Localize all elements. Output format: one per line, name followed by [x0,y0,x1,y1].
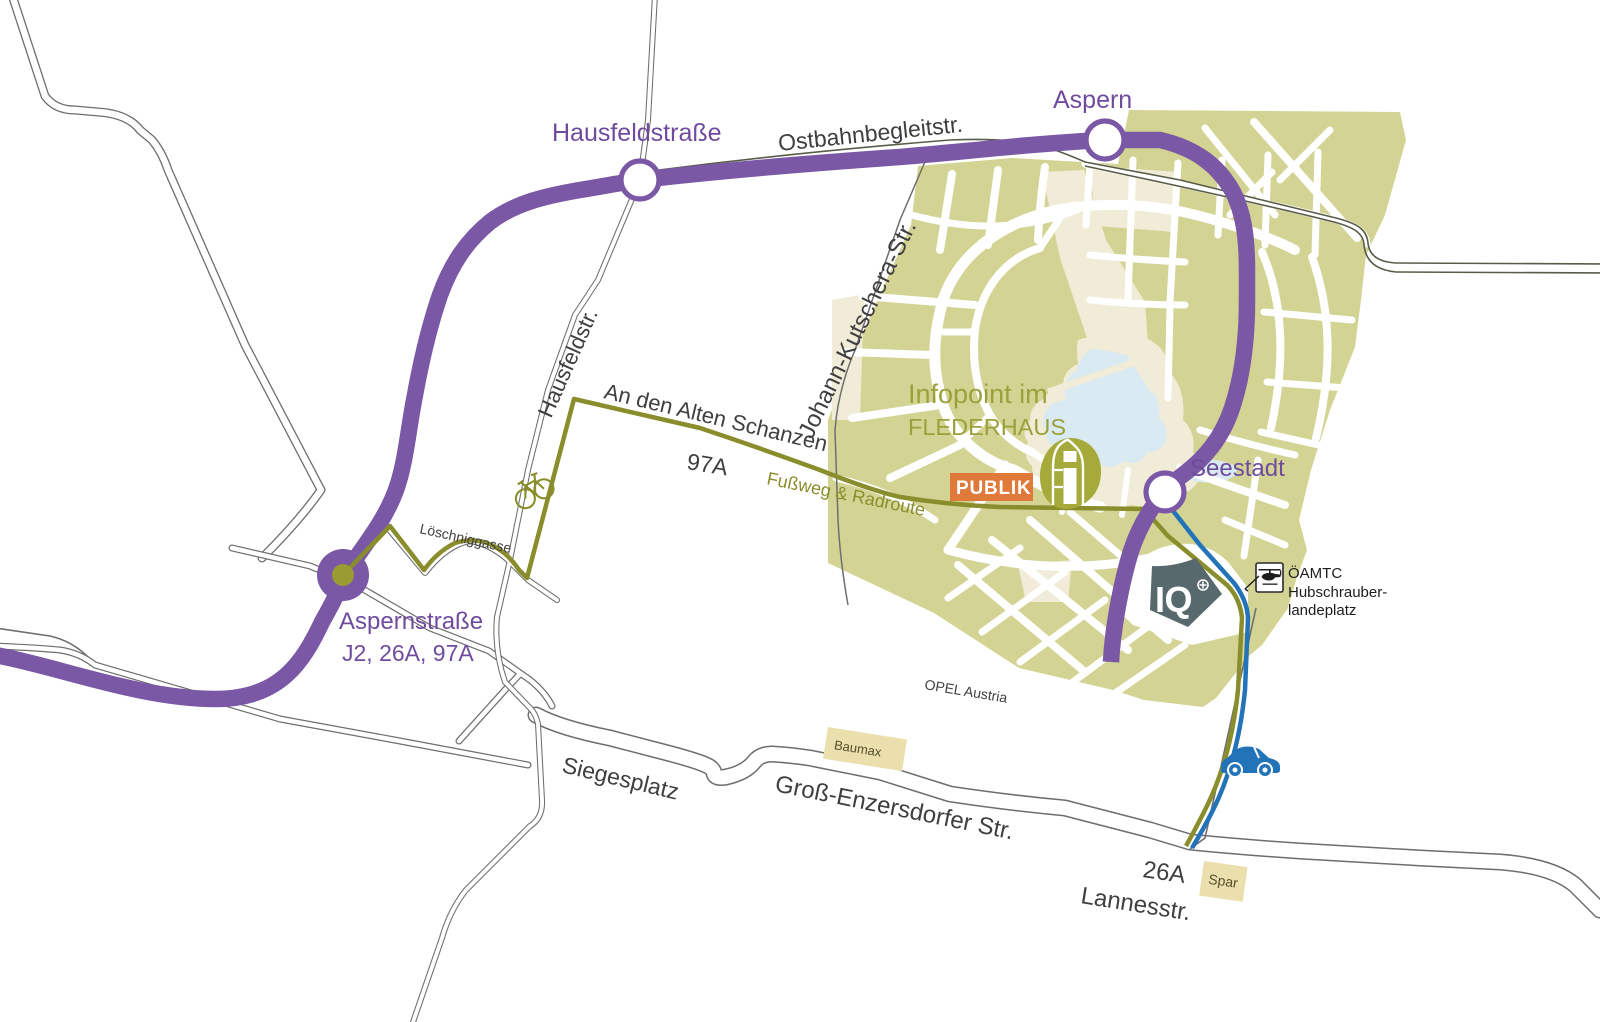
svg-text:Infopoint im: Infopoint im [908,379,1048,409]
svg-text:IQ: IQ [1155,579,1192,620]
svg-text:J2, 26A, 97A: J2, 26A, 97A [342,640,474,666]
svg-text:Hausfeldstraße: Hausfeldstraße [552,119,722,147]
svg-text:PUBLIK: PUBLIK [956,478,1032,499]
svg-text:FLEDERHAUS: FLEDERHAUS [908,414,1066,440]
svg-text:Seestadt: Seestadt [1190,455,1285,482]
svg-text:Hubschrauber-: Hubschrauber- [1288,584,1387,601]
svg-text:Aspernstraße: Aspernstraße [339,608,483,635]
svg-text:landeplatz: landeplatz [1288,602,1356,619]
svg-text:ÖAMTC: ÖAMTC [1288,564,1342,582]
svg-text:Aspern: Aspern [1053,86,1132,114]
